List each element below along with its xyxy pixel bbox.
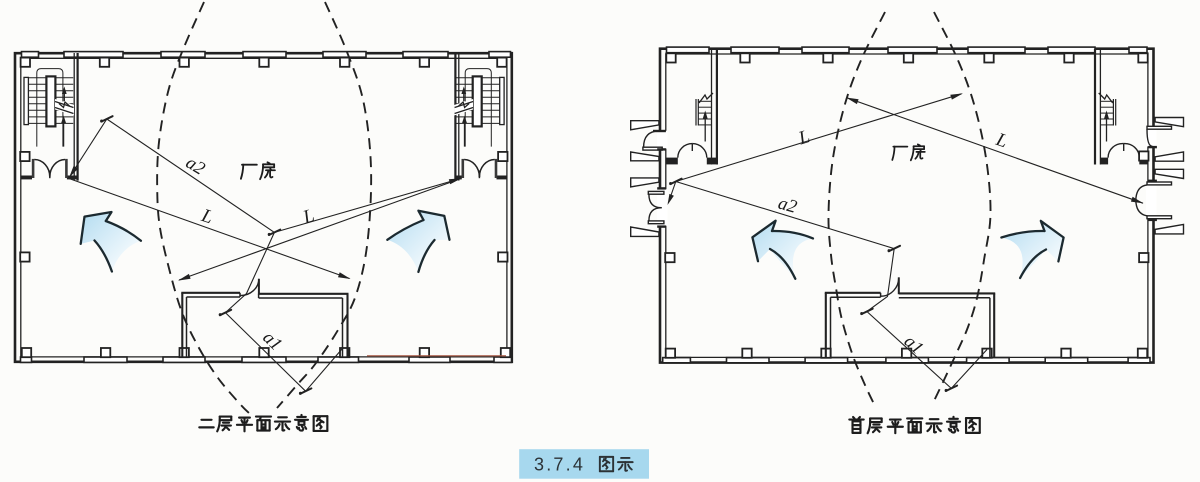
svg-text:3.7.4: 3.7.4 (534, 455, 585, 475)
svg-text:a2: a2 (776, 194, 799, 218)
svg-text:L: L (795, 126, 812, 149)
svg-text:L: L (198, 205, 216, 229)
svg-text:a2: a2 (182, 153, 208, 180)
svg-text:L: L (992, 129, 1010, 153)
svg-text:L: L (300, 205, 317, 228)
